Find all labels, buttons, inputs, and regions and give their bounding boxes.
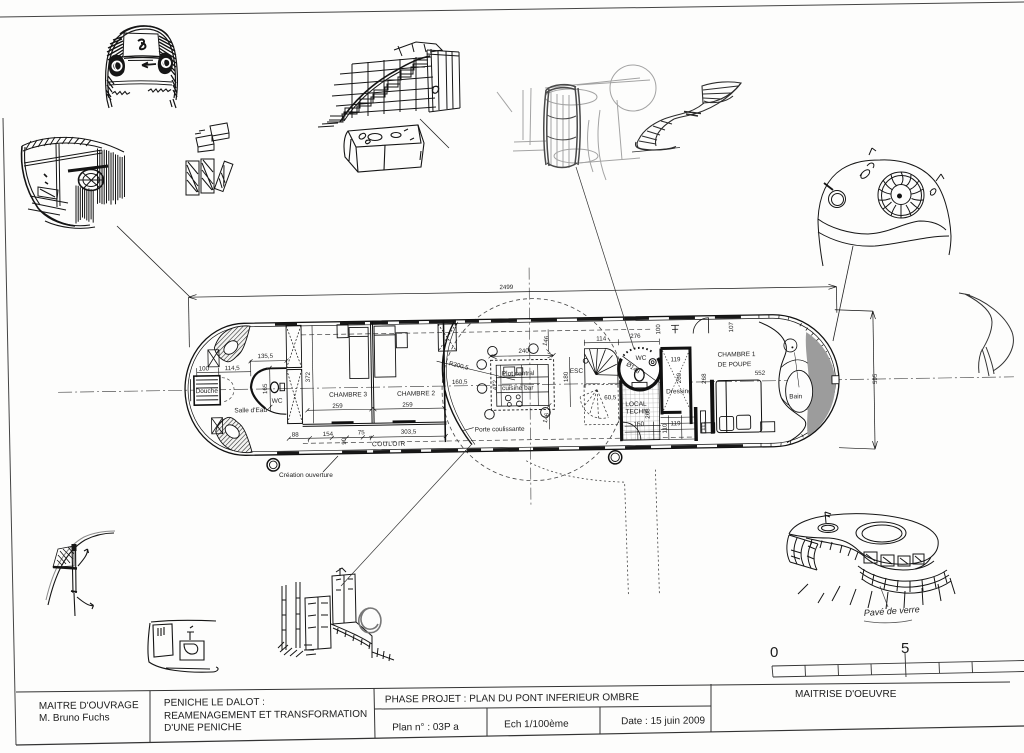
svg-text:160,5: 160,5 (452, 379, 468, 386)
svg-text:Porte coulissante: Porte coulissante (475, 426, 525, 434)
svg-text:CHAMBRE 1: CHAMBRE 1 (717, 351, 755, 359)
svg-text:DE POUPE: DE POUPE (718, 361, 752, 369)
svg-text:259: 259 (402, 402, 413, 409)
svg-text:268: 268 (644, 408, 651, 419)
svg-text:110: 110 (662, 423, 669, 434)
svg-text:180: 180 (563, 371, 570, 382)
svg-text:276: 276 (630, 333, 641, 340)
svg-text:D'UNE PENICHE: D'UNE PENICHE (164, 722, 242, 734)
svg-text:Date : 15 juin 2009: Date : 15 juin 2009 (621, 715, 705, 727)
svg-text:150: 150 (634, 421, 645, 428)
svg-text:303,5: 303,5 (401, 429, 417, 436)
svg-text:119: 119 (671, 420, 682, 427)
svg-text:Bain: Bain (789, 393, 803, 400)
svg-text:135,5: 135,5 (257, 353, 273, 360)
svg-text:114,5: 114,5 (225, 365, 241, 372)
svg-text:Plot central: Plot central (502, 370, 535, 378)
svg-text:268: 268 (701, 373, 708, 384)
svg-text:100: 100 (199, 365, 210, 372)
svg-text:259: 259 (332, 403, 343, 410)
svg-text:REAMENAGEMENT ET TRANSFORMATIO: REAMENAGEMENT ET TRANSFORMATION (164, 709, 367, 722)
svg-text:107: 107 (728, 321, 735, 332)
svg-text:240: 240 (518, 348, 529, 355)
svg-text:5: 5 (901, 640, 909, 657)
svg-text:CHAMBRE 2: CHAMBRE 2 (397, 390, 435, 398)
svg-text:MAITRISE D'OEUVRE: MAITRISE D'OEUVRE (795, 689, 897, 700)
svg-text:100: 100 (655, 324, 662, 335)
svg-text:Plan n° : 03P a: Plan n° : 03P a (392, 722, 459, 734)
svg-text:88: 88 (292, 431, 300, 438)
svg-text:372: 372 (305, 371, 312, 382)
svg-text:Salle d'Eau: Salle d'Eau (234, 407, 267, 415)
svg-text:M. Bruno Fuchs: M. Bruno Fuchs (39, 712, 110, 724)
svg-text:165: 165 (262, 383, 269, 394)
svg-text:90: 90 (341, 437, 348, 445)
svg-text:ESC: ESC (570, 368, 584, 375)
svg-text:552: 552 (755, 370, 766, 377)
svg-text:Création ouverture: Création ouverture (279, 472, 333, 479)
svg-text:Douche: Douche (196, 388, 219, 395)
svg-text:Dressing: Dressing (666, 388, 692, 395)
svg-text:COULOIR: COULOIR (372, 441, 406, 449)
svg-text:472: 472 (492, 379, 499, 390)
svg-text:WC: WC (636, 355, 647, 362)
svg-text:60,5: 60,5 (604, 394, 617, 401)
svg-text:2499: 2499 (499, 284, 513, 291)
svg-text:119: 119 (671, 356, 682, 363)
svg-text:154: 154 (323, 431, 334, 438)
svg-text:CHAMBRE 3: CHAMBRE 3 (329, 391, 367, 399)
svg-text:114: 114 (596, 335, 607, 342)
svg-text:595: 595 (872, 373, 879, 384)
svg-text:PENICHE LE DALOT :: PENICHE LE DALOT : (164, 697, 265, 709)
svg-text:111: 111 (700, 421, 707, 431)
svg-text:Ech 1/100ème: Ech 1/100ème (504, 719, 569, 731)
svg-text:0: 0 (770, 644, 778, 661)
svg-text:WC: WC (272, 398, 283, 405)
svg-text:LOCAL: LOCAL (625, 401, 647, 408)
svg-text:260: 260 (676, 372, 683, 383)
svg-text:cuisine bar: cuisine bar (502, 385, 534, 393)
svg-text:75: 75 (358, 429, 366, 436)
svg-text:MAITRE D'OUVRAGE: MAITRE D'OUVRAGE (39, 700, 139, 712)
